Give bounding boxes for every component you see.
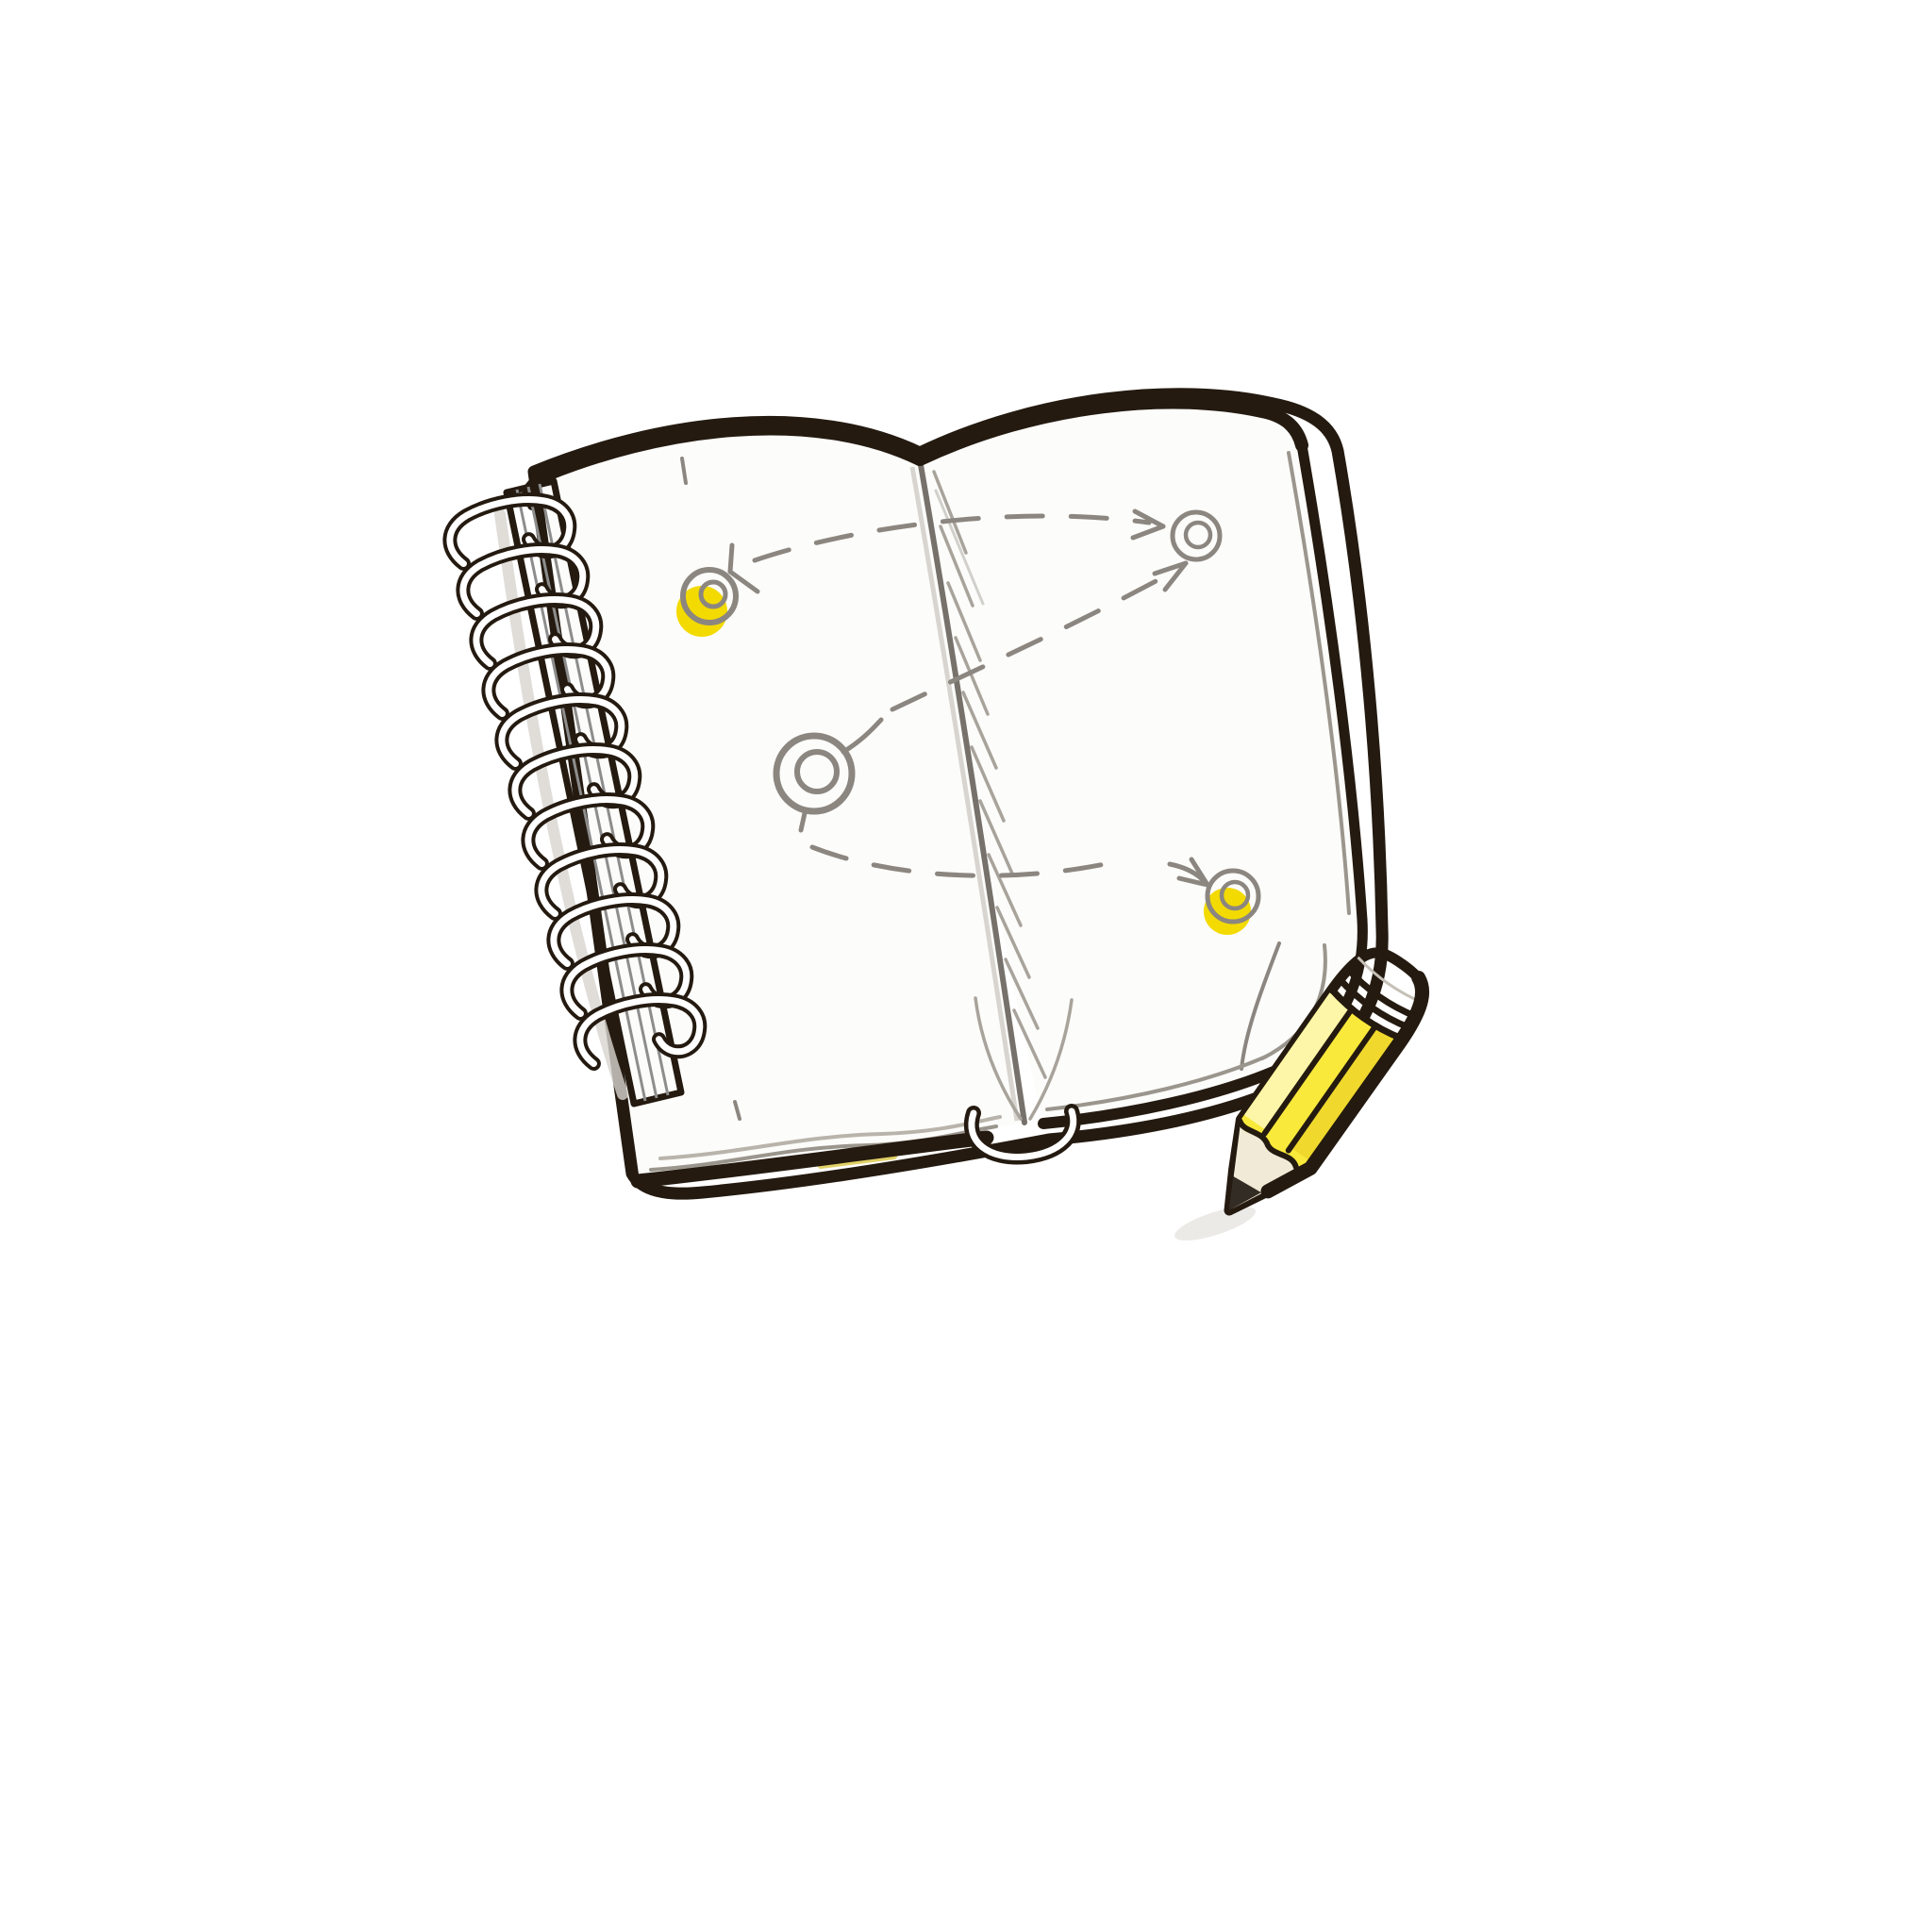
notebook-pencil-illustration xyxy=(0,0,1932,1932)
notebook-illustration xyxy=(445,394,1437,1248)
illustration-canvas: Hand-drawn cartoon illustration of an op… xyxy=(0,0,1932,1932)
